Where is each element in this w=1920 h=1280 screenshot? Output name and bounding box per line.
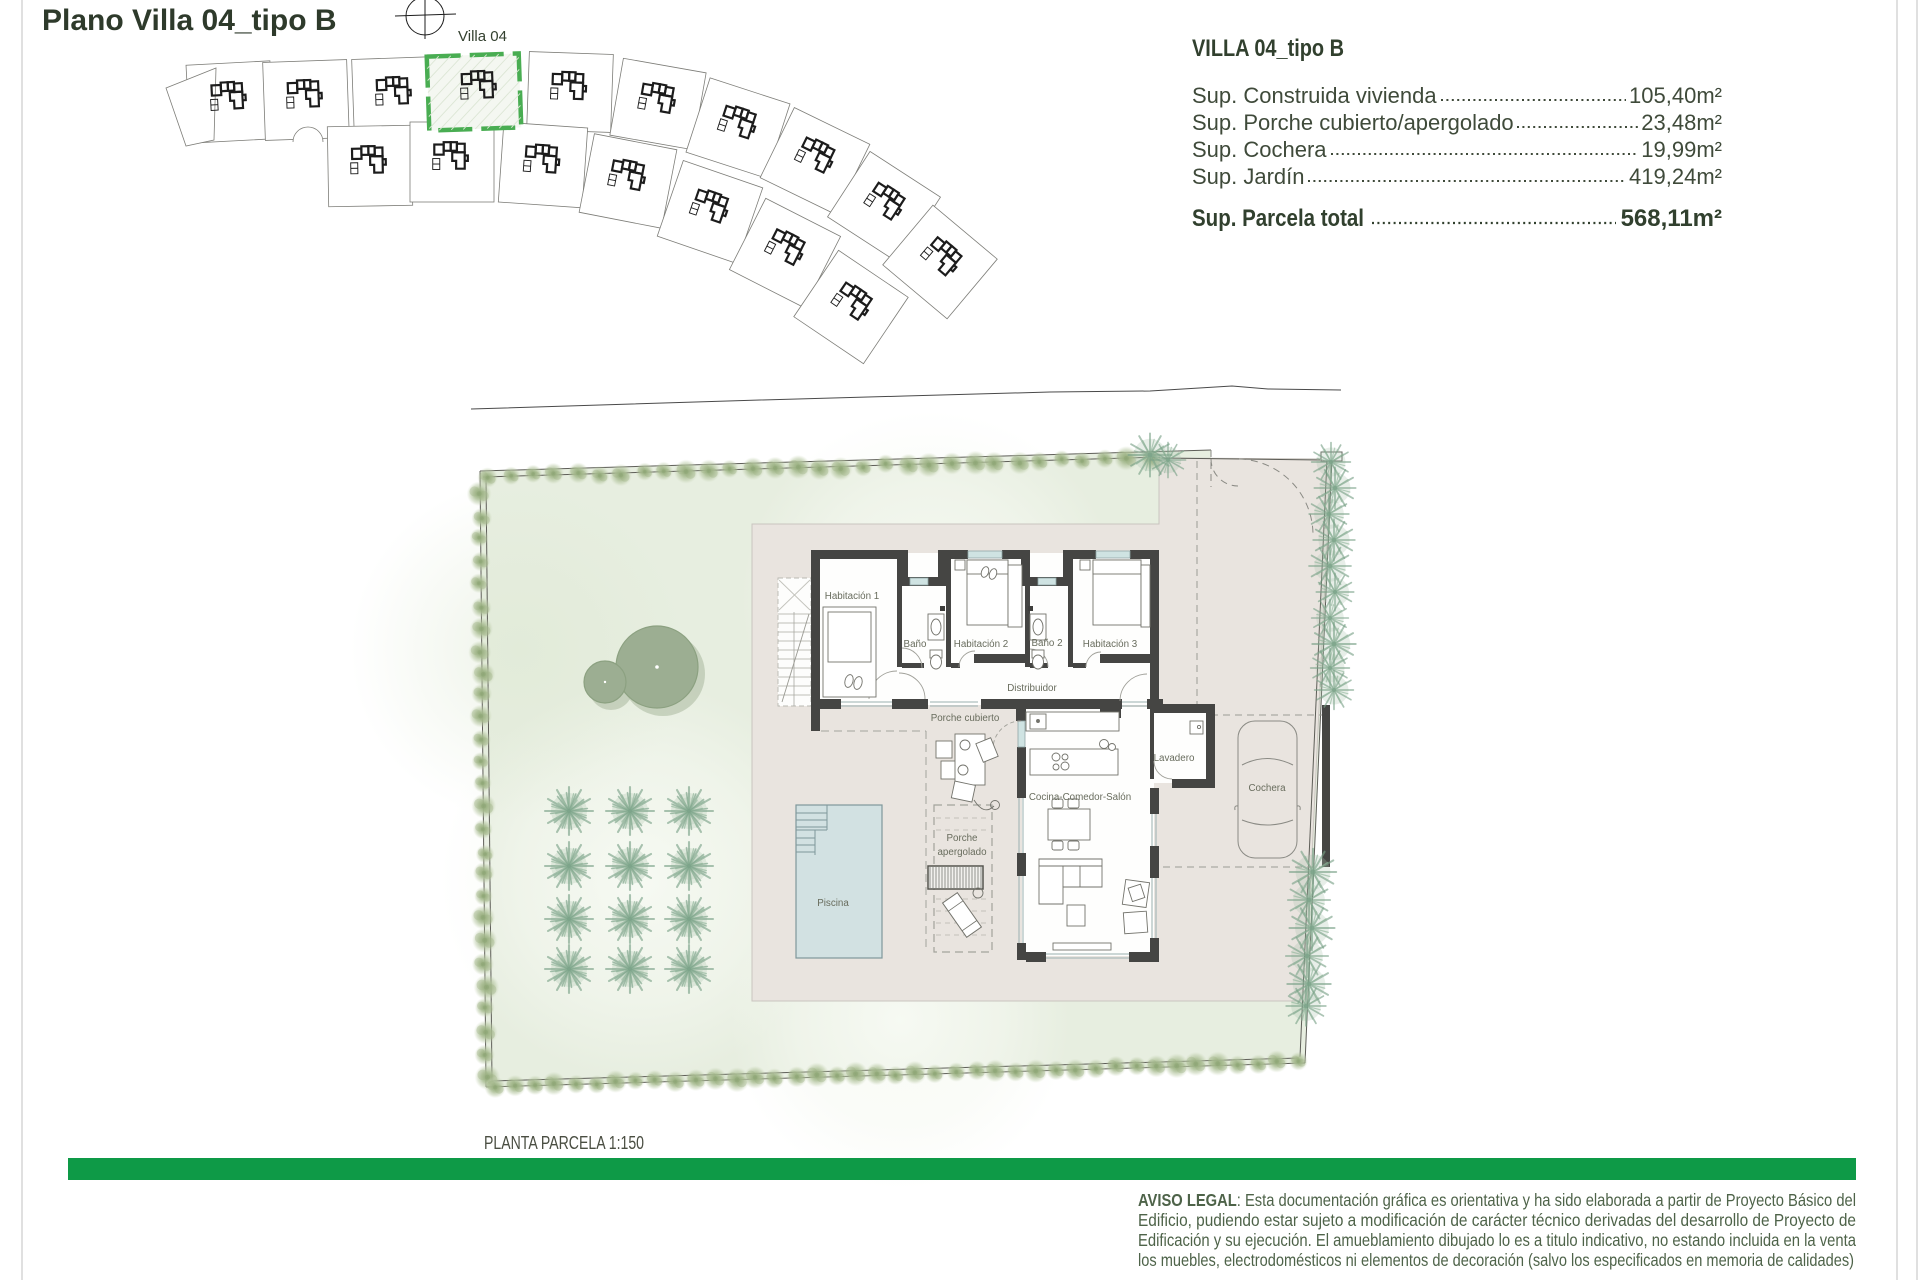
svg-text:Sup. Construida vivienda: Sup. Construida vivienda: [1192, 83, 1437, 108]
svg-text:Cocina-Comedor-Salón: Cocina-Comedor-Salón: [1029, 792, 1131, 803]
svg-text:Sup. Cochera: Sup. Cochera: [1192, 137, 1327, 162]
svg-text:Plano Villa 04_tipo B: Plano Villa 04_tipo B: [42, 4, 337, 37]
svg-text:Villa 04: Villa 04: [458, 28, 507, 45]
svg-text:Cochera: Cochera: [1248, 783, 1286, 794]
svg-text:Edificio, pudiendo estar sujet: Edificio, pudiendo estar sujeto a modifi…: [1138, 1210, 1856, 1230]
svg-text:419,24m²: 419,24m²: [1629, 164, 1722, 189]
svg-text:568,11m²: 568,11m²: [1621, 205, 1722, 232]
svg-text:105,40m²: 105,40m²: [1629, 83, 1722, 108]
svg-text:Baño 2: Baño 2: [1031, 638, 1062, 649]
svg-text:19,99m²: 19,99m²: [1641, 137, 1722, 162]
svg-text:apergolado: apergolado: [937, 847, 987, 858]
svg-text:Sup. Porche cubierto/apergolad: Sup. Porche cubierto/apergolado: [1192, 110, 1514, 135]
svg-text:PLANTA PARCELA 1:150: PLANTA PARCELA 1:150: [484, 1133, 644, 1153]
svg-text:Habitación 1: Habitación 1: [825, 591, 879, 602]
svg-text:Porche cubierto: Porche cubierto: [931, 713, 1000, 724]
svg-text:Lavadero: Lavadero: [1154, 753, 1195, 764]
svg-text:Sup. Parcela total: Sup. Parcela total: [1192, 205, 1364, 232]
svg-text:Sup. Jardín: Sup. Jardín: [1192, 164, 1305, 189]
svg-text:AVISO LEGAL: Esta documentació: AVISO LEGAL: Esta documentación gráfica …: [1138, 1190, 1856, 1210]
svg-text:Habitación 3: Habitación 3: [1083, 639, 1138, 650]
svg-text:Piscina: Piscina: [817, 898, 849, 909]
svg-text:Distribuidor: Distribuidor: [1007, 683, 1057, 694]
svg-text:VILLA 04_tipo B: VILLA 04_tipo B: [1192, 35, 1344, 62]
svg-text:Baño: Baño: [904, 639, 927, 650]
svg-text:Edificación y su ejecución. El: Edificación y su ejecución. El amueblami…: [1138, 1230, 1856, 1250]
svg-text:Porche: Porche: [946, 833, 978, 844]
svg-text:los muebles, electrodomésticos: los muebles, electrodomésticos ni elemen…: [1138, 1250, 1854, 1270]
svg-text:23,48m²: 23,48m²: [1641, 110, 1722, 135]
svg-text:Habitación 2: Habitación 2: [954, 639, 1008, 650]
